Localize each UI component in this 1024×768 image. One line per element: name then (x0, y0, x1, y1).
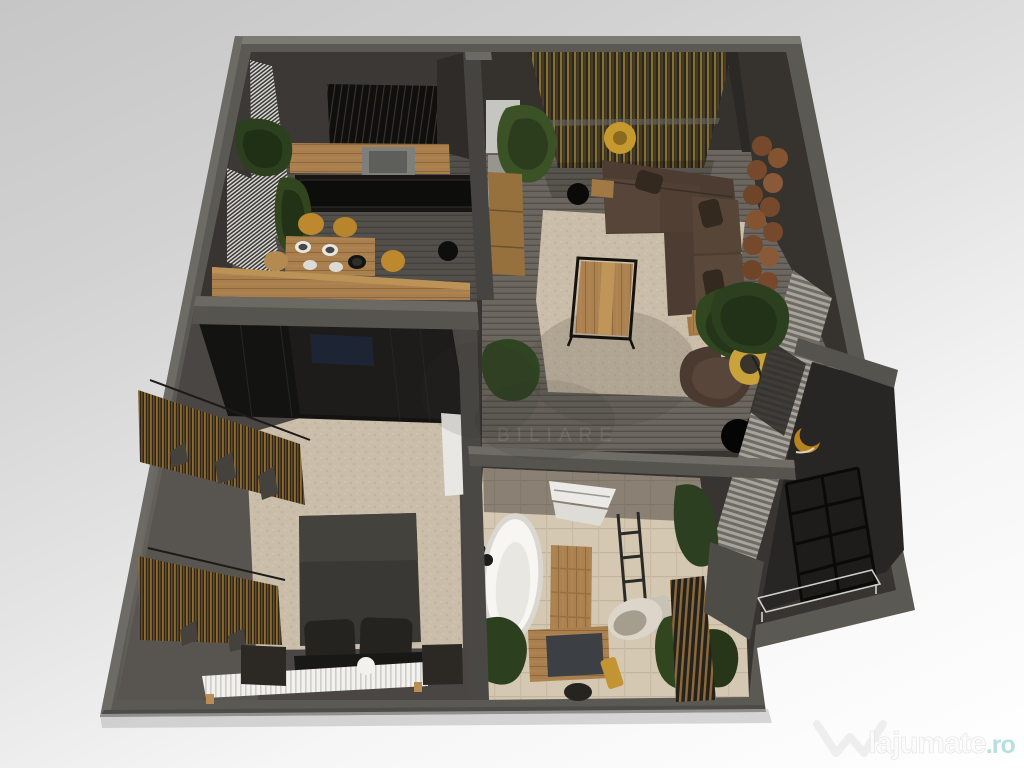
svg-text:lajumate.ro: lajumate.ro (868, 725, 1015, 760)
